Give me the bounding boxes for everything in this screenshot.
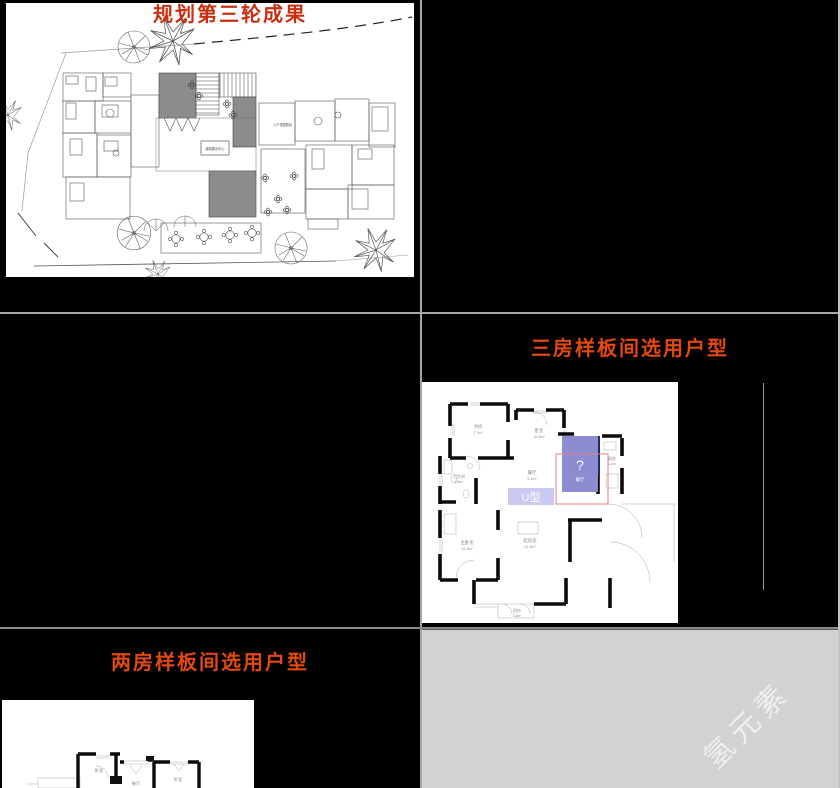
svg-text:书房: 书房 bbox=[474, 423, 483, 430]
svg-text:餐厅: 餐厅 bbox=[528, 469, 537, 476]
entry-garden-label: 入户花园阳台 bbox=[273, 122, 292, 127]
slide-4-title: 三房样板间选用户型 bbox=[422, 332, 838, 361]
type-chip[interactable]: U型 bbox=[508, 488, 554, 505]
left-wing-building bbox=[63, 73, 159, 219]
svg-text:卧室: 卧室 bbox=[95, 767, 103, 774]
svg-text:厨房: 厨房 bbox=[608, 456, 616, 461]
site-plan-image: 建筑展示中心 入户花园阳台 bbox=[6, 3, 414, 277]
vertical-divider bbox=[420, 0, 422, 788]
wall-block bbox=[110, 776, 122, 784]
horizontal-divider-2 bbox=[0, 627, 840, 629]
horizontal-divider-1 bbox=[0, 312, 840, 314]
svg-text:阳台: 阳台 bbox=[513, 607, 521, 613]
highlight-question-mark: ? bbox=[576, 457, 584, 473]
two-bedroom-plan-graphic: 卧室 餐厅 卧室 bbox=[2, 700, 254, 788]
three-bedroom-plan-graphic: ? 餐厅 U型 书房 7.7m² 卧室 10.0m² 卫生间 4.0m² 餐厅 … bbox=[422, 382, 678, 623]
tree-icons bbox=[6, 17, 395, 277]
svg-text:起居室: 起居室 bbox=[523, 537, 537, 544]
slide-thumbnail-2-blank[interactable] bbox=[422, 0, 838, 312]
slide-sorter-view: 建筑展示中心 入户花园阳台 bbox=[0, 0, 840, 788]
wall-block bbox=[146, 756, 154, 761]
central-core: 建筑展示中心 bbox=[156, 73, 256, 217]
svg-text:主卧室: 主卧室 bbox=[460, 539, 474, 546]
slide-edge-line bbox=[763, 383, 764, 590]
canvas-background: 氢元素 bbox=[422, 629, 838, 788]
slide-thumbnail-5[interactable]: 两房样板间选用户型 卧室 餐厅 卧室 bbox=[0, 629, 420, 788]
svg-text:9.1m²: 9.1m² bbox=[527, 477, 537, 481]
svg-text:餐厅: 餐厅 bbox=[132, 780, 140, 787]
svg-text:6.1m²: 6.1m² bbox=[608, 462, 616, 466]
svg-text:卧室: 卧室 bbox=[174, 776, 182, 783]
slide-thumbnail-1[interactable]: 建筑展示中心 入户花园阳台 bbox=[0, 0, 420, 312]
right-wing-building: 入户花园阳台 bbox=[259, 99, 395, 229]
highlight-room-label: 餐厅 bbox=[576, 476, 585, 483]
patio-area bbox=[144, 216, 261, 253]
slide-thumbnail-4[interactable]: 三房样板间选用户型 bbox=[422, 314, 838, 627]
slide-5-title: 两房样板间选用户型 bbox=[0, 646, 420, 675]
center-hall-label: 建筑展示中心 bbox=[205, 146, 225, 151]
svg-text:7.7m²: 7.7m² bbox=[473, 431, 483, 435]
slide-1-title: 规划第三轮成果 bbox=[0, 0, 420, 27]
site-boundaries bbox=[18, 17, 412, 266]
svg-text:卫生间: 卫生间 bbox=[453, 473, 465, 479]
site-plan-graphic: 建筑展示中心 入户花园阳台 bbox=[6, 3, 414, 277]
svg-text:12.3m²: 12.3m² bbox=[461, 547, 473, 551]
slide-thumbnail-3-blank[interactable] bbox=[0, 314, 420, 627]
svg-text:3.2m²: 3.2m² bbox=[513, 614, 521, 618]
plan-walls bbox=[440, 404, 622, 608]
watermark-text: 氢元素 bbox=[660, 638, 830, 788]
two-bedroom-plan-image: 卧室 餐厅 卧室 bbox=[2, 700, 254, 788]
svg-text:卧室: 卧室 bbox=[535, 427, 544, 434]
svg-text:10.0m²: 10.0m² bbox=[533, 435, 545, 439]
svg-text:21.3m²: 21.3m² bbox=[524, 545, 536, 549]
svg-text:4.0m²: 4.0m² bbox=[455, 480, 465, 484]
three-bedroom-plan-image: ? 餐厅 U型 书房 7.7m² 卧室 10.0m² 卫生间 4.0m² 餐厅 … bbox=[422, 382, 678, 623]
type-chip-label: U型 bbox=[522, 490, 541, 504]
